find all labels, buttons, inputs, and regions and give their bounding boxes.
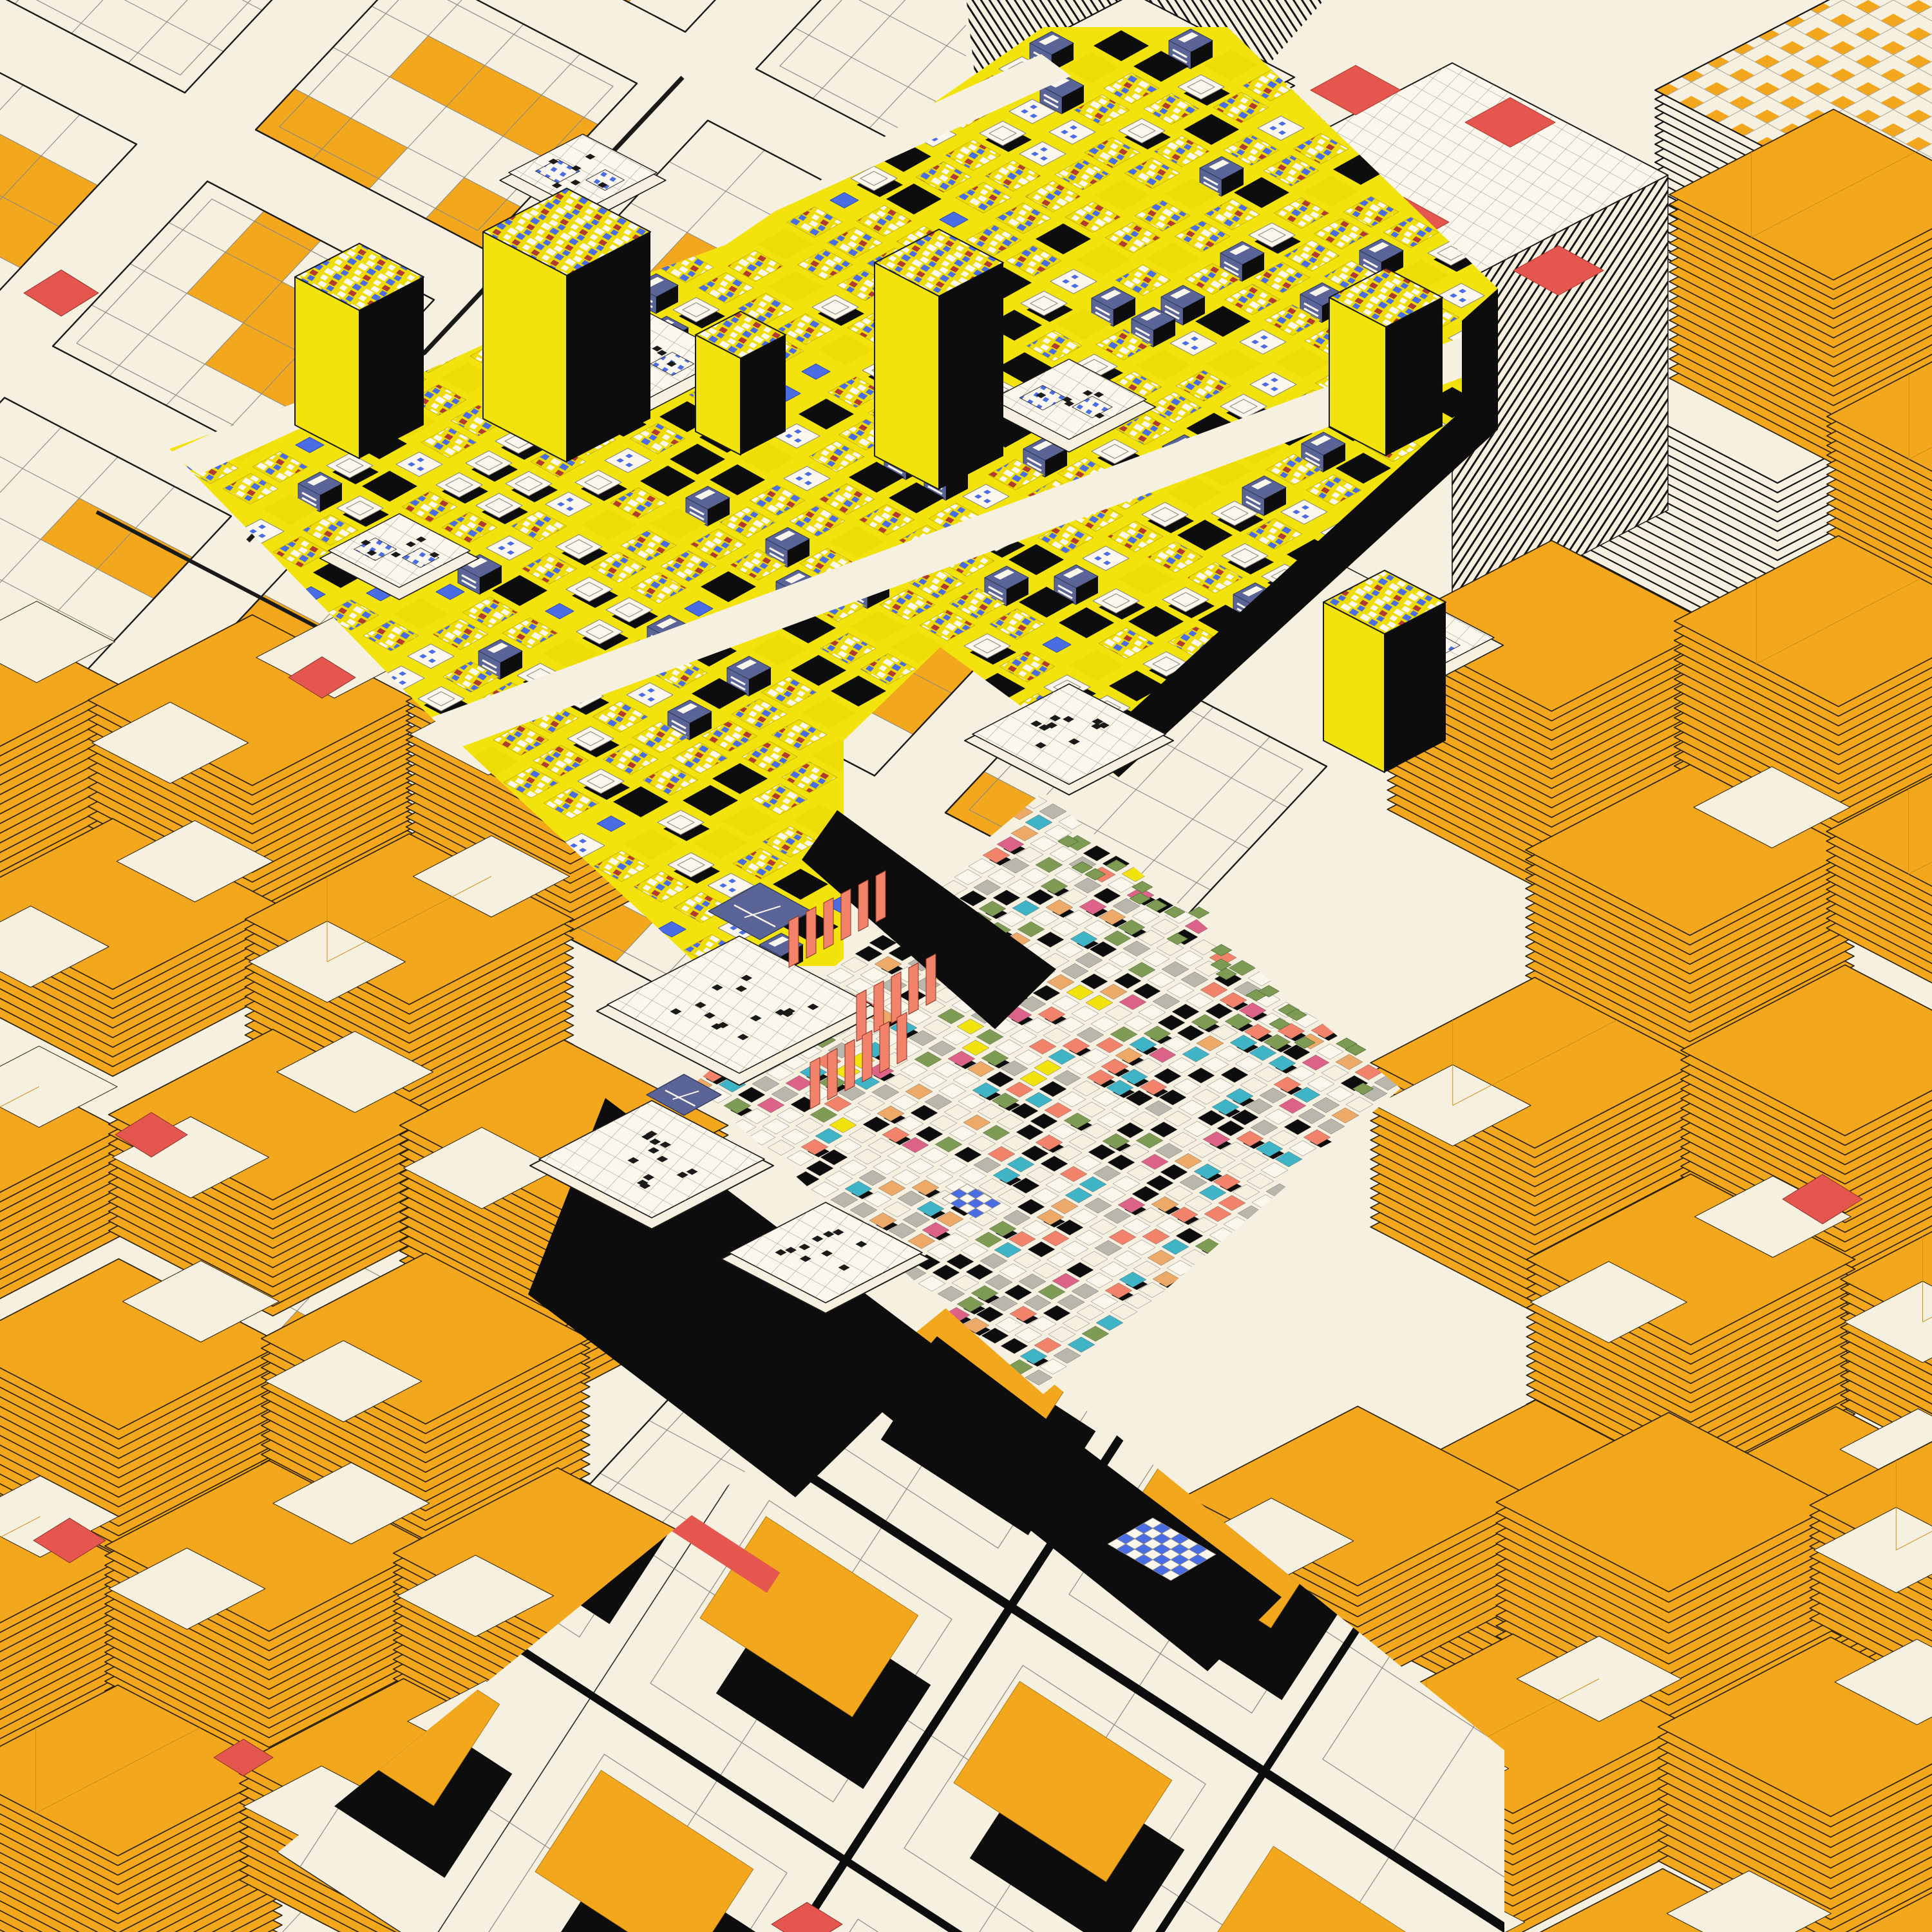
salmon-bar [862,1030,872,1082]
salmon-bar [876,871,885,922]
salmon-bar [789,916,799,967]
salmon-bar [874,981,884,1032]
yellow-cube [483,188,650,462]
yellow-cube [1329,268,1443,456]
salmon-bar [897,1012,907,1064]
salmon-bar [926,954,936,1005]
salmon-bar [891,972,901,1023]
yellow-cube [1323,571,1446,773]
cube-face-right [939,263,1003,489]
salmon-bar [824,898,833,949]
yellow-cube [875,229,1003,489]
salmon-bar [845,1039,855,1091]
salmon-bar [806,907,816,958]
yellow-cube [295,243,424,459]
salmon-bar [828,1048,837,1100]
salmon-bar [857,990,866,1041]
salmon-bar [810,1057,820,1109]
salmon-bar [880,1021,889,1073]
cube-face-left [875,263,939,489]
generative-artwork-canvas [0,0,1932,1932]
salmon-bar [909,963,918,1014]
yellow-cube [696,312,786,455]
artwork-stage [0,0,1932,1932]
salmon-bar [858,880,868,931]
salmon-bar [841,889,851,940]
